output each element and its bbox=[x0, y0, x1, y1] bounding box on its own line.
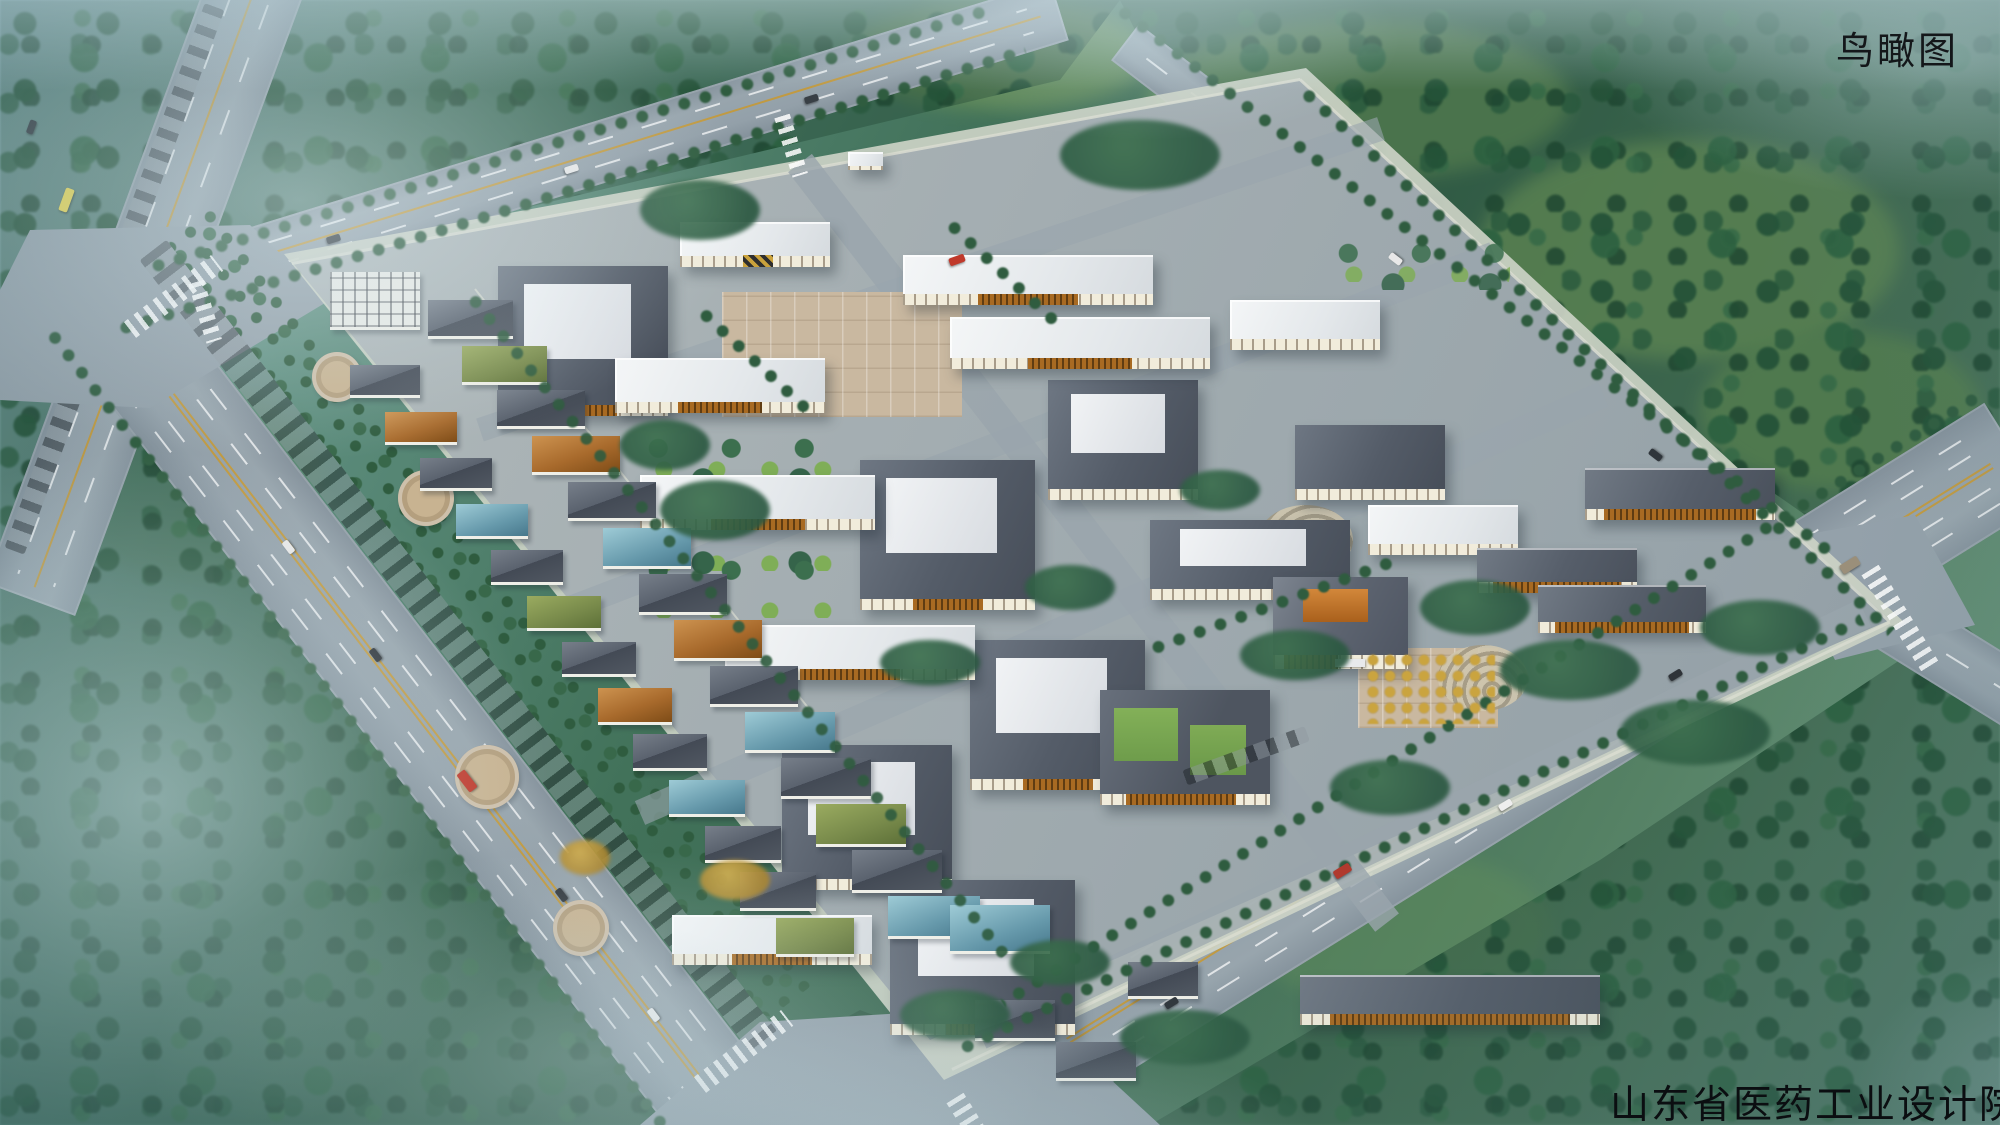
roof-skylight bbox=[996, 658, 1106, 733]
mist-top-band bbox=[0, 0, 2000, 90]
shop-building bbox=[633, 734, 707, 771]
guard-house-wall bbox=[848, 166, 883, 170]
factory-facade bbox=[860, 599, 1035, 610]
warehouse-roof bbox=[950, 317, 1210, 358]
glass-shop-building bbox=[669, 780, 745, 817]
roof-skylight bbox=[1180, 529, 1306, 566]
golden-tree-grid bbox=[1365, 652, 1495, 724]
warehouse-facade bbox=[950, 358, 1210, 369]
warehouse-roof bbox=[1230, 300, 1380, 339]
shop-building bbox=[420, 458, 492, 491]
warehouse-roof bbox=[1368, 505, 1518, 544]
tree-cluster bbox=[880, 640, 980, 685]
view-title: 鸟瞰图 bbox=[1836, 20, 1959, 75]
guard-house-roof bbox=[848, 152, 883, 166]
louver-accent bbox=[1028, 358, 1132, 369]
tree-cluster bbox=[1180, 470, 1260, 510]
building-roof bbox=[1300, 975, 1600, 1014]
shop-building bbox=[562, 642, 636, 677]
building-facade bbox=[1300, 1014, 1600, 1025]
factory-facade bbox=[1295, 489, 1445, 500]
glass-shop-building bbox=[456, 504, 528, 539]
roof-skylight bbox=[886, 478, 996, 553]
tree-cluster bbox=[1330, 760, 1450, 815]
factory-roof bbox=[860, 460, 1035, 599]
courtyard-facade bbox=[1100, 794, 1270, 805]
factory-building bbox=[1295, 425, 1445, 500]
guard-house bbox=[848, 152, 883, 170]
louver-accent bbox=[678, 402, 762, 413]
factory-building bbox=[860, 460, 1035, 610]
louver-accent bbox=[1604, 509, 1756, 520]
shop-building bbox=[598, 688, 672, 725]
courtyard-lawn bbox=[1114, 708, 1179, 761]
tree-cluster bbox=[1420, 580, 1530, 635]
warehouse-facade bbox=[1230, 339, 1380, 350]
aerial-rendering: 鸟瞰图 山东省医药工业设计院 bbox=[0, 0, 2000, 1125]
tree-cluster bbox=[1620, 700, 1770, 765]
factory-roof bbox=[1048, 380, 1198, 489]
factory-facade bbox=[1048, 489, 1198, 500]
striped-gate bbox=[743, 255, 773, 267]
loading-door-stripes bbox=[1023, 779, 1093, 790]
louver-accent bbox=[1126, 794, 1237, 805]
tree-cluster bbox=[1240, 630, 1350, 680]
tree-cluster bbox=[660, 480, 770, 540]
design-institute-credit: 山东省医药工业设计院 bbox=[1610, 1074, 2000, 1125]
louver-accent bbox=[1330, 1014, 1570, 1025]
south-long-building bbox=[1300, 975, 1600, 1025]
courtyard-roof bbox=[1477, 548, 1637, 582]
tree-cluster bbox=[1500, 640, 1640, 700]
tree-cluster bbox=[1025, 565, 1115, 610]
loading-door-stripes bbox=[913, 599, 983, 610]
factory-building bbox=[1048, 380, 1198, 500]
shop-building bbox=[491, 550, 563, 585]
warehouse-building bbox=[950, 317, 1210, 369]
roof-skylight bbox=[1071, 394, 1166, 453]
tree-cluster bbox=[620, 420, 710, 470]
tree-cluster bbox=[1700, 600, 1820, 655]
warehouse-building bbox=[1230, 300, 1380, 350]
shop-building bbox=[527, 596, 601, 631]
factory-roof bbox=[1295, 425, 1445, 489]
tree-cluster bbox=[1010, 940, 1110, 985]
